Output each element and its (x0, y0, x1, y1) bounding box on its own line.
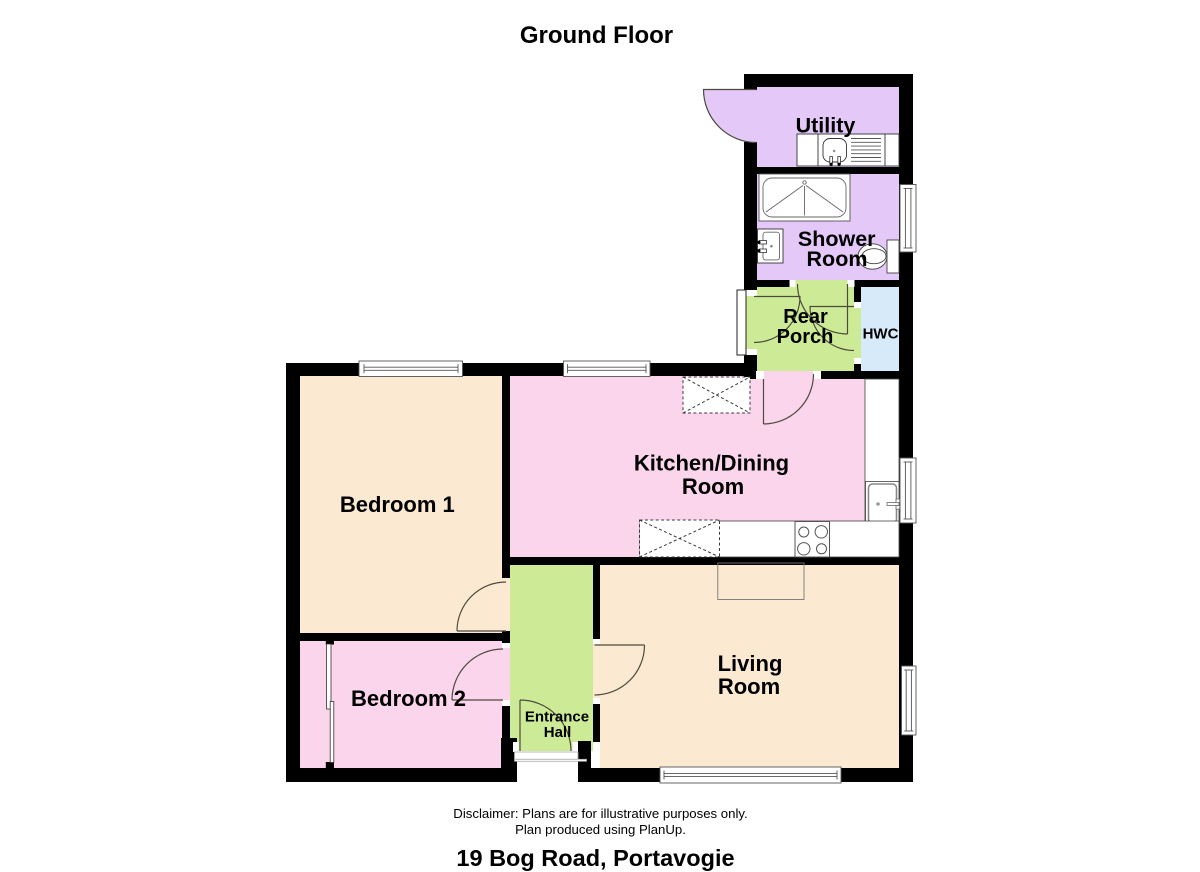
svg-text:Ground Floor: Ground Floor (520, 22, 673, 49)
svg-text:19 Bog Road, Portavogie: 19 Bog Road, Portavogie (456, 845, 734, 871)
svg-text:Kitchen/Dining: Kitchen/Dining (634, 451, 789, 476)
svg-text:Entrance: Entrance (525, 709, 589, 726)
svg-text:Room: Room (682, 474, 744, 499)
svg-text:HWC: HWC (863, 326, 899, 343)
svg-text:Hall: Hall (544, 724, 572, 741)
svg-text:Porch: Porch (777, 326, 834, 348)
svg-text:Utility: Utility (796, 114, 856, 138)
svg-text:Bedroom 2: Bedroom 2 (351, 686, 466, 711)
svg-text:Room: Room (718, 674, 780, 699)
svg-text:Room: Room (807, 247, 868, 271)
svg-text:Disclaimer: Plans are for illu: Disclaimer: Plans are for illustrative p… (453, 806, 747, 821)
svg-text:Plan produced using PlanUp.: Plan produced using PlanUp. (515, 822, 686, 837)
svg-text:Rear: Rear (783, 306, 828, 328)
svg-text:Bedroom 1: Bedroom 1 (340, 492, 455, 517)
svg-text:Living: Living (718, 651, 783, 676)
